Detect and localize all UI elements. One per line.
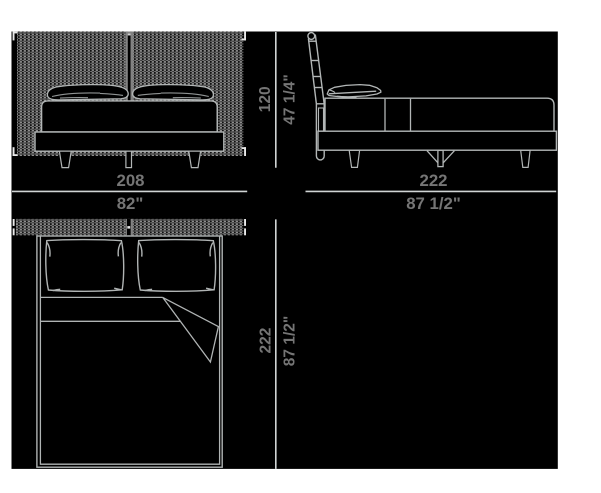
svg-text:47 1/4": 47 1/4"	[282, 74, 299, 124]
svg-text:87 1/2": 87 1/2"	[281, 316, 298, 366]
svg-text:222: 222	[257, 328, 274, 354]
svg-text:208: 208	[117, 171, 145, 190]
svg-text:120: 120	[257, 86, 274, 112]
svg-text:82": 82"	[117, 194, 144, 213]
svg-text:87 1/2": 87 1/2"	[406, 194, 461, 213]
svg-text:222: 222	[420, 171, 448, 190]
